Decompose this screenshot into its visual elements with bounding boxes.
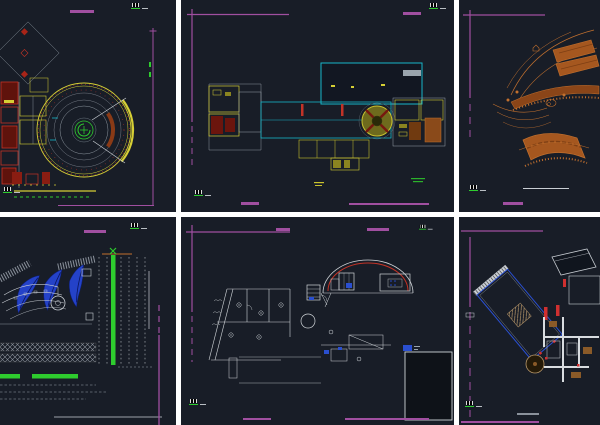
logo-mark [430, 3, 437, 7]
sheet-second-floor-plan[interactable] [181, 217, 454, 425]
linear-plan-drawing [181, 0, 454, 212]
hatch-strip [0, 343, 96, 351]
sheet-first-floor-plan[interactable] [459, 0, 600, 212]
right-rooms [393, 98, 445, 146]
logo-green-bar [429, 8, 438, 10]
sheet-landscape-plan[interactable] [0, 217, 176, 425]
logo-green-bar [131, 8, 140, 10]
sheet-radial-plan[interactable] [0, 0, 176, 212]
legend-table [403, 345, 452, 420]
second-floor-drawing [181, 217, 454, 425]
disamag-logo [194, 189, 221, 196]
logo-mark [470, 185, 477, 189]
left-wing [209, 84, 261, 150]
sheet-library-plan[interactable] [459, 217, 600, 425]
logo-white-bar [205, 195, 211, 197]
purple-divider [243, 418, 271, 420]
leaf-shapes [13, 265, 99, 313]
logo-mark [195, 190, 202, 194]
disamag-logo [465, 400, 492, 407]
logo-mark [131, 223, 138, 227]
table-grid [229, 357, 321, 383]
logo-green-bar [465, 406, 474, 408]
right-rooms [321, 330, 391, 361]
logo-mark [190, 399, 197, 403]
gray-divider [517, 413, 539, 415]
title-underline [523, 188, 569, 189]
grid-lines [99, 257, 145, 365]
radial-plan-drawing [0, 0, 176, 212]
logo-white-bar [476, 406, 482, 408]
disamag-logo [130, 222, 157, 229]
logo-white-bar [440, 8, 446, 10]
logo-white-bar [480, 190, 486, 192]
lower-rooms [299, 140, 369, 170]
purple-divider [345, 418, 429, 420]
logo-white-bar [14, 192, 20, 194]
hatch-band [0, 263, 30, 279]
hatch-band [58, 259, 95, 267]
disamag-logo [429, 2, 454, 9]
logo-white-bar [142, 8, 148, 10]
purple-divider [276, 228, 290, 231]
green-bar [111, 255, 116, 365]
logo-green-bar [189, 404, 198, 406]
purple-divider [84, 230, 106, 233]
logo-green-bar [130, 228, 139, 230]
green-bar [32, 374, 78, 379]
disamag-logo [131, 2, 158, 9]
logo-green-bar [469, 190, 478, 192]
logo-green-bar [3, 192, 12, 194]
disamag-logo [469, 184, 496, 191]
tilted-reading-hall [473, 265, 564, 362]
purple-divider [349, 203, 429, 205]
logo-mark [420, 224, 426, 227]
logo-white-bar [428, 228, 433, 229]
logo-green-bar [194, 195, 203, 197]
purple-divider [461, 421, 539, 423]
left-red-rooms [1, 82, 18, 184]
circular-hall [37, 83, 133, 177]
curved-building [493, 30, 599, 166]
hatch-strip [0, 354, 96, 362]
round-stair [526, 355, 544, 373]
green-bar [0, 374, 20, 379]
logo-green-bar [419, 228, 426, 229]
logo-mark [132, 3, 139, 7]
purple-divider [503, 202, 523, 205]
logo-white-bar [200, 404, 206, 406]
stair-rotunda [359, 103, 395, 139]
diamond-grid-wing [0, 22, 59, 84]
dome-hall [307, 260, 413, 307]
right-wing [544, 249, 600, 382]
purple-divider [403, 12, 421, 15]
logo-mark [4, 187, 11, 191]
disamag-logo [3, 186, 30, 193]
logo-white-bar [141, 228, 147, 230]
cad-collage [0, 0, 600, 425]
purple-divider [367, 228, 389, 231]
logo-mark [466, 401, 473, 405]
purple-divider [241, 202, 259, 205]
library-plan-drawing [459, 217, 600, 425]
left-block [209, 289, 315, 360]
landscape-plan-drawing [0, 217, 176, 425]
sheet-linear-plan[interactable] [181, 0, 454, 212]
purple-divider [70, 10, 94, 13]
disamag-logo [419, 224, 441, 230]
curved-plan-drawing [459, 0, 600, 212]
disamag-logo [189, 398, 216, 405]
